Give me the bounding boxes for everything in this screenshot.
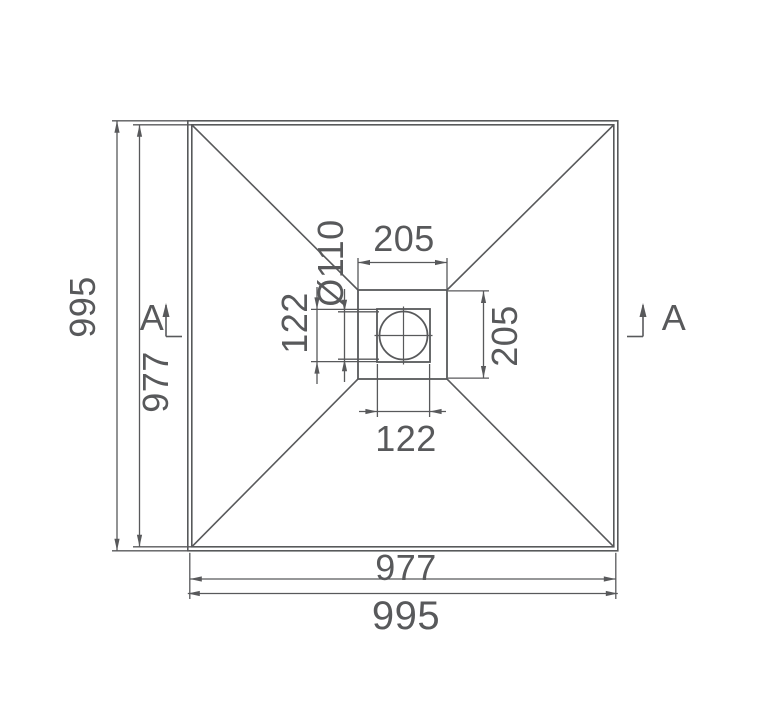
slope-diagonal-topright xyxy=(447,125,613,290)
dim-label-977-left: 977 xyxy=(138,351,174,413)
arrow-977-bottom-left xyxy=(190,576,202,581)
arrow-977-left-bottom xyxy=(137,535,142,547)
arrow-995-left-top xyxy=(114,121,119,133)
center-recess-square xyxy=(358,290,447,379)
arrow-205-top-left xyxy=(358,260,370,265)
dim-label-995-left: 995 xyxy=(65,276,101,338)
dim-label-122-left: 122 xyxy=(277,292,313,354)
arrow-977-bottom-right xyxy=(604,576,616,581)
dim-label-205-top: 205 xyxy=(373,221,435,257)
arrow-122-bottom-right xyxy=(430,409,442,414)
arrow-122-bottom-left xyxy=(365,409,377,414)
arrow-205-right-bottom xyxy=(481,366,486,378)
dim-label-122-bottom: 122 xyxy=(375,421,437,457)
technical-drawing-canvas: 995 977 205 205 122 Ø110 122 977 995 A A xyxy=(0,0,781,728)
dim-label-diameter-110: Ø110 xyxy=(313,219,349,306)
arrow-977-left-top xyxy=(137,125,142,137)
arrow-122-left-bottom xyxy=(314,362,319,374)
dim-label-977-bottom: 977 xyxy=(375,550,437,586)
arrow-995-left-bottom xyxy=(114,539,119,551)
section-arrow-right xyxy=(640,303,647,317)
dim-label-995-bottom: 995 xyxy=(372,596,440,636)
slope-diagonal-bottomright xyxy=(447,379,613,546)
arrow-205-top-right xyxy=(435,260,447,265)
slope-diagonal-bottomleft xyxy=(192,379,358,546)
section-label-a-right: A xyxy=(662,300,687,336)
section-label-a-left: A xyxy=(140,300,165,336)
dim-label-205-right: 205 xyxy=(487,305,523,367)
arrow-205-right-top xyxy=(481,291,486,303)
